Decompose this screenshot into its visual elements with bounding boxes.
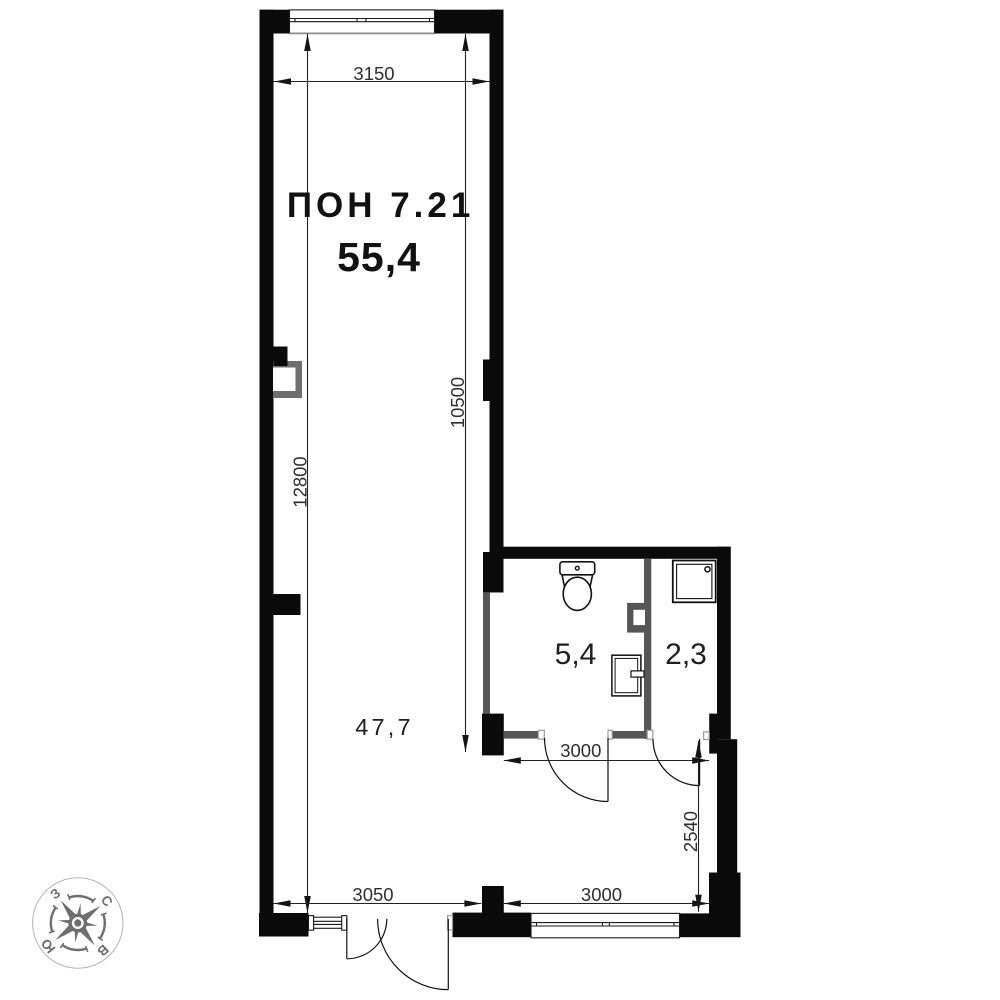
svg-text:3000: 3000 xyxy=(560,740,601,761)
svg-text:2,3: 2,3 xyxy=(665,638,707,671)
svg-text:5,4: 5,4 xyxy=(555,638,597,671)
svg-text:3050: 3050 xyxy=(352,884,393,905)
svg-text:47,7: 47,7 xyxy=(355,714,414,740)
svg-text:ПОН 7.21: ПОН 7.21 xyxy=(287,186,475,225)
svg-text:55,4: 55,4 xyxy=(337,234,421,280)
svg-text:3000: 3000 xyxy=(581,884,622,905)
svg-text:10500: 10500 xyxy=(447,377,468,428)
svg-text:12800: 12800 xyxy=(290,456,311,507)
svg-text:2540: 2540 xyxy=(680,811,701,852)
svg-text:3150: 3150 xyxy=(353,63,394,84)
